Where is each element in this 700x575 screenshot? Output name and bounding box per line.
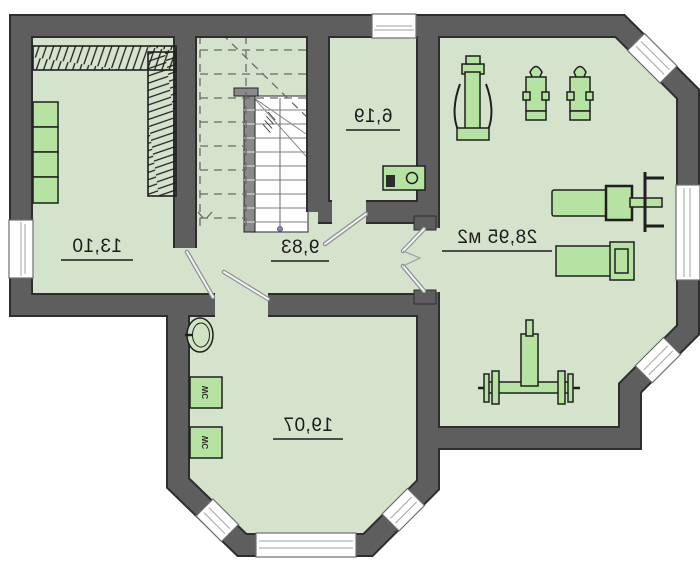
stair-rail-end [278, 227, 283, 232]
wc-box-1: WC [190, 377, 222, 408]
room-label-utility-room: 6,19 [346, 106, 400, 130]
workout-bench-icon [556, 242, 634, 280]
window-top [372, 14, 416, 38]
svg-text:13,10: 13,10 [72, 236, 122, 257]
svg-text:6,19: 6,19 [354, 106, 393, 127]
floor-plan: WC WC [0, 0, 700, 575]
svg-text:9,83: 9,83 [281, 237, 320, 258]
window-left [9, 220, 33, 278]
window-bay-right-middle [676, 185, 700, 280]
room-label-bedroom: 19,07 [273, 415, 343, 439]
wc-box-2: WC [190, 427, 222, 458]
washing-machine-icon [383, 166, 425, 190]
wc-box-2-label: WC [201, 436, 210, 450]
svg-text:28,95 м2: 28,95 м2 [457, 227, 537, 248]
floor-plan-drawing: WC WC [0, 0, 700, 575]
wardrobe-rail-right [148, 52, 176, 196]
wc-box-1-label: WC [201, 386, 210, 400]
window-bay-bottom-center [256, 533, 356, 557]
room-label-gym: 28,95 м2 [442, 227, 552, 251]
svg-text:19,07: 19,07 [283, 415, 333, 436]
wardrobe-cabinets [33, 102, 58, 203]
